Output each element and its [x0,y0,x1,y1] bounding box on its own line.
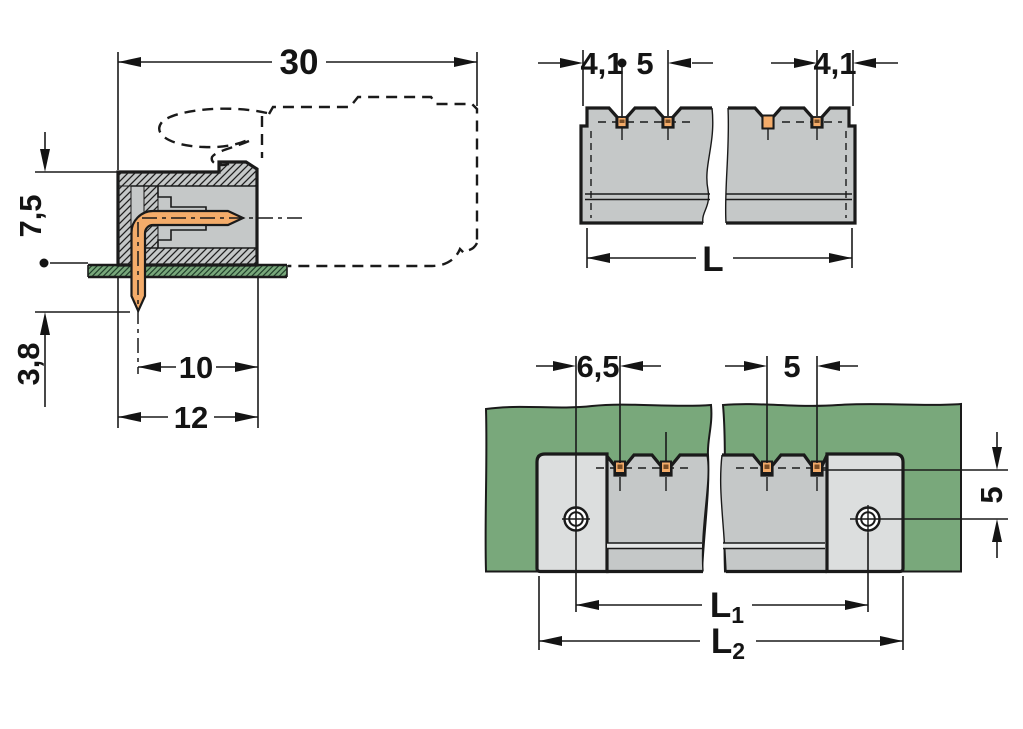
dim-12-label: 12 [174,400,208,435]
dim-height-7-5: 7,5 [13,132,117,268]
dim-pin-to-face-10: 10 [138,350,258,385]
body-fill [726,108,855,223]
dim-total-depth-30: 30 [118,43,477,170]
dim-4-1-right-label: 4,1 [813,46,856,81]
dim-3-8-label: 3,8 [11,342,46,385]
pin-2-core [664,465,669,470]
pin-1-core [620,120,625,124]
connector-technical-drawing: 30 7,5 3,8 10 12 [0,0,1023,729]
dim-pitch-5-top: 5 [636,46,713,116]
mounting-flanges [537,454,903,572]
dim-body-depth-12: 12 [118,400,258,435]
technical-drawing-page: 30 7,5 3,8 10 12 [0,0,1023,729]
dim-30-label: 30 [280,43,319,82]
bottom-view: 6,5 5 5 L1 L2 [486,349,1009,664]
pcb-cross-section [88,265,287,277]
pin-2-core [666,120,671,124]
top-view: 4,1 5 4,1 L [538,46,898,279]
dim-4-1-left-label: 4,1 [580,46,623,81]
body-left-wall-hatch [118,186,131,265]
body-fill [581,108,713,223]
side-view-section: 30 7,5 3,8 10 12 [11,43,477,435]
pin-3-core [765,465,770,470]
dim-L2-label: L2 [711,622,745,664]
ridge-band-left [607,544,702,549]
dim-end-to-pin-4-1-left: 4,1 [538,46,627,118]
top-view-body-left-section [581,108,713,223]
ridge-band-right [723,544,825,549]
dim-5-bottom-label: 5 [783,349,800,384]
dim-pin-depth-3-8: 3,8 [11,312,130,407]
body-bottom-wall-hatch [144,248,257,265]
pin-4-core [815,465,820,470]
pin-3 [763,116,774,129]
dim-L-label: L [702,240,723,279]
datum-dot [40,259,49,268]
pin-1-core [618,465,623,470]
pin-4-core [815,120,820,124]
dim-5-vertical-label: 5 [974,486,1009,503]
body-top-wall-hatch [118,162,257,186]
dim-length-L: L [587,228,852,279]
dim-5-top-label: 5 [636,46,653,81]
top-view-body-right-section [726,108,855,223]
pcb-strip [88,265,287,277]
dim-pin-to-end-4-1-right: 4,1 [771,46,898,116]
dim-7-5-label: 7,5 [13,194,48,237]
body-inner-wall-upper-hatch [144,186,158,212]
dim-6-5-label: 6,5 [576,349,619,384]
dim-10-label: 10 [179,350,213,385]
